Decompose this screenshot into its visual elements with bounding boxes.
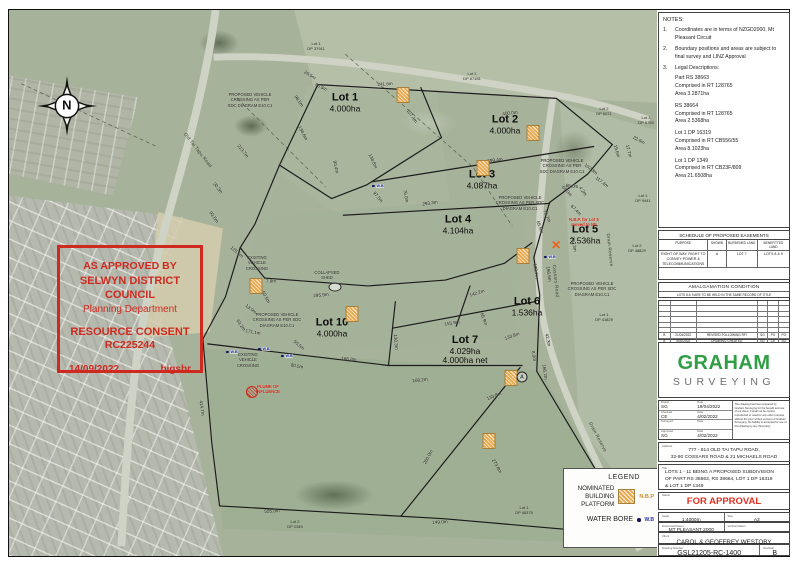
lot-name: Lot 2: [490, 115, 521, 127]
copyright-note: This drawing has been prepared by Graham…: [733, 401, 790, 439]
legal-description: Lot 1 DP 1349Comprised in RT CB23F/809Ar…: [675, 158, 785, 181]
plume-of-influence-icon: [246, 386, 258, 398]
measurement-label: 42.3m: [544, 333, 552, 347]
legend-wb-abbr: W.B: [645, 517, 654, 523]
note-text: Boundary positions and areas are subject…: [675, 46, 785, 62]
date-label: Date: [697, 420, 729, 423]
note-item: 1.Coordinates are in terms of NZGD2000, …: [663, 27, 785, 43]
water-bore-icon: [637, 518, 641, 522]
building-platform-icon: [505, 370, 518, 386]
stamp-date: 14/09/2022: [69, 364, 119, 375]
legend-nbp-label: NOMINATED BUILDING PLATFORM: [578, 485, 615, 508]
note-number: 3.: [663, 65, 671, 73]
neighbor-lot-label: Lot 2DP 48829: [628, 244, 646, 254]
measurement-label: 79.7m: [542, 209, 552, 223]
water-bore-icon: [544, 256, 547, 259]
vdatum-label: Vertical Datum: [728, 524, 787, 528]
measurement-label: 90.4m: [332, 160, 340, 174]
lot5-moved-nbp-cross: ×: [551, 238, 560, 254]
road-name-label: Old Tai Tapu Road: [183, 132, 213, 169]
lot-area: 4.104ha: [443, 226, 474, 235]
lot-name: Lot 6: [512, 297, 543, 309]
measurement-label: 76.0m: [402, 189, 409, 202]
datum-row: Horizontal DatumMT PLEASANT 2000 Vertica…: [658, 522, 790, 532]
legal-line: Area 3.2871ha: [675, 91, 785, 99]
legal-description: RS 38664Comprised in RT 128765Area 2.536…: [675, 103, 785, 126]
plan-sheet: N 241.6m400.0m26.5m56.5m98.5m138.6m90.4m…: [0, 0, 800, 566]
measurement-label: 22.6m: [632, 135, 646, 145]
measurement-label: 30.3m: [212, 181, 224, 194]
project-address: Address 777 - 814 OLD TAI TAPU ROAD, 32-…: [658, 442, 790, 462]
easement-title: SCHEDULE OF PROPOSED EASEMENTS: [659, 231, 789, 240]
measurement-label: 155.9m: [444, 319, 460, 326]
measurement-label: 65.0m: [565, 183, 578, 189]
note-text: Legal Descriptions:: [675, 65, 719, 73]
measurement-label: 130.7m: [532, 263, 539, 279]
approved-date: 4/02/2022: [697, 433, 729, 438]
neighbor-dp: DP 46375: [515, 510, 533, 515]
measurement-label: 125.5m: [230, 245, 245, 259]
map-annotation: COLLAPSED SHED: [314, 270, 339, 281]
neighbor-dp: DP 48829: [628, 248, 646, 253]
neighbor-lot-label: Lot 3DP 5765: [638, 116, 654, 126]
title-block-panel: NOTES: 1.Coordinates are in terms of NZG…: [658, 10, 790, 556]
lot-area: 4.000ha: [316, 329, 348, 338]
lot-label: Lot 52.536ha: [570, 225, 601, 246]
lot-label: Lot 61.536ha: [512, 297, 543, 318]
notes-box: NOTES: 1.Coordinates are in terms of NZG…: [658, 12, 790, 228]
lot-name: Lot 1: [330, 93, 361, 105]
legend-wb-label: WATER BORE: [587, 516, 633, 523]
approved-value: SG: [661, 433, 693, 438]
map-annotation: EXISTING VEHICLE CROSSING: [246, 255, 268, 271]
neighbor-dp: DP 41829: [595, 317, 613, 322]
building-platform-icon: [517, 248, 530, 264]
neighbor-dp: DP 1349: [287, 524, 303, 529]
easement-header: BURDENED LAND: [727, 240, 758, 251]
legal-line: RS 38664: [675, 103, 785, 111]
legal-descriptions: Part RS 38663Comprised in RT 128765Area …: [663, 75, 785, 181]
lot-area-net: 4.000ha net: [443, 356, 488, 365]
measurement-label: 273.8m: [491, 458, 503, 474]
amalgamation-text: LOTS 8 & 9 ARE TO BE HELD IN THE SAME RE…: [659, 291, 789, 297]
road-name-label: Drain Reserve: [606, 233, 614, 267]
dwg-number: GSL21205-RC-1400: [662, 550, 756, 557]
logo-graham: GRAHAM: [678, 353, 771, 373]
water-bore-icon: [372, 185, 375, 188]
measurement-label: 8.0m: [531, 351, 538, 362]
measurement-label: 168.2m: [412, 377, 428, 384]
legal-line: Comprised in RT CB23F/809: [675, 165, 785, 173]
measurement-label: 414.7m: [198, 400, 205, 416]
neighbor-dp: DP 37911: [307, 46, 324, 51]
map-area: N 241.6m400.0m26.5m56.5m98.5m138.6m90.4m…: [9, 10, 657, 556]
water-bore-label: W.B: [230, 350, 238, 354]
lot-label: Lot 104.000ha: [316, 318, 348, 339]
legal-line: Lot 1 DP 16319: [675, 130, 785, 138]
measurement-label: 166.2m: [541, 364, 548, 380]
lot-area: 1.536ha: [512, 308, 543, 317]
neighbor-lot-label: Lot 1DP 37911: [307, 42, 324, 52]
measurement-label: 138.8m: [367, 153, 378, 169]
easement-header: PURPOSE: [659, 240, 708, 251]
measurement-label: 63.2m: [235, 318, 246, 331]
easement-cell: LOT 7: [727, 251, 758, 268]
measurement-label: 213.7m: [236, 143, 249, 158]
measurement-label: 133.8m: [486, 391, 502, 401]
neighbor-dp: DP 6071: [596, 111, 612, 116]
neighbor-dp: DP 9441: [635, 198, 651, 203]
measurement-label: 56.5m: [314, 82, 328, 92]
legal-line: Comprised in RT 128765: [675, 111, 785, 119]
stamp-code: bigsbr: [160, 364, 191, 375]
neighbor-lot-label: Lot 2DP 6071: [596, 107, 612, 117]
stamp-line: Planning Department: [60, 303, 200, 316]
drawn-value: SG: [661, 404, 693, 409]
building-platform-icon: [250, 278, 263, 294]
lot-name: Lot 10: [316, 318, 348, 330]
revision-table: B21/04/2022REVISED FOLLOWING RFISGPOPOA4…: [658, 300, 790, 340]
water-bore-marker: W.B: [226, 350, 238, 354]
easement-cell: LOTS 8 & 9: [758, 251, 789, 268]
easement-cell: A: [708, 251, 726, 268]
easement-header: SHOWN: [708, 240, 726, 251]
measurement-label: 7.9m: [266, 279, 276, 284]
legend-title: LEGEND: [570, 474, 640, 481]
checked-value: CE: [661, 414, 693, 419]
note-number: 2.: [663, 46, 671, 62]
lot-name: Lot 4: [443, 215, 474, 227]
measurement-label: 19.6m: [613, 144, 621, 158]
address-line2: 32-90 COSSARS ROAD & 21 MICHAELS ROAD: [662, 455, 786, 462]
checked-date: 4/02/2022: [697, 414, 729, 419]
legal-line: Lot 1 DP 1349: [675, 158, 785, 166]
easement-schedule: SCHEDULE OF PROPOSED EASEMENTS PURPOSESH…: [658, 230, 790, 280]
legal-line: Area 8.1023ha: [675, 146, 785, 154]
neighbor-lot-label: Lot 1DP 9441: [635, 194, 651, 204]
measurement-label: 17.7m: [625, 144, 633, 158]
drawing-number-box: Drawing NumberGSL21205-RC-1400 RevisionB: [658, 544, 790, 556]
building-platform-icon: [397, 87, 410, 103]
legal-line: Comprised in RT 128765: [675, 83, 785, 91]
measurement-label: 117.4m: [595, 175, 610, 188]
notes-title: NOTES:: [663, 16, 785, 24]
stamp-line: AS APPROVED BY: [83, 260, 177, 272]
measurement-label: 295.9m: [313, 292, 329, 298]
water-bore-label: W.B: [262, 347, 270, 351]
client-box: Client CAROL & GEOFFREY WESTOBY: [658, 532, 790, 544]
lot-name: Lot 7: [443, 335, 488, 347]
surveyed-label: Surveyed: [661, 420, 693, 423]
legend-box: LEGEND NOMINATED BUILDING PLATFORM N.B.P…: [563, 468, 657, 548]
measurement-label: 166.8m: [341, 356, 357, 363]
collapsed-shed-icon: [329, 283, 342, 292]
drawing-title: Title LOTS 1 - 11 BEING A PROPOSED SUBDI…: [658, 464, 790, 490]
map-annotation: PROPOSED VEHICLE CROSSING AS PER SDC DIA…: [496, 195, 545, 211]
lot-label: Lot 14.000ha: [330, 93, 361, 114]
measurement-label: 241.6m: [377, 81, 393, 87]
nbp-swatch-icon: [618, 489, 635, 504]
water-bore-marker: W.B: [281, 354, 293, 358]
road-name-label: Drain Reserve: [588, 421, 608, 453]
title-line2: OF PART RS 38663, RS 38664, LOT 1 DP 163…: [662, 477, 786, 484]
measurement-label: 93.5m: [208, 210, 219, 223]
company-logo: GRAHAM SURVEYING: [658, 342, 790, 398]
water-bore-icon: [258, 348, 261, 351]
easement-header: BENEFITTED LAND: [758, 240, 789, 251]
measurement-label: 555.8m: [264, 508, 280, 514]
lot-label: Lot 24.000ha: [490, 115, 521, 136]
rev-value: B: [763, 550, 786, 557]
status-for-approval: FOR APPROVAL: [659, 497, 789, 508]
measurement-label: 50.5m: [292, 339, 305, 351]
easement-a-marker: A: [517, 372, 528, 383]
note-item: 2.Boundary positions and areas are subje…: [663, 46, 785, 62]
measurement-label: 260.0m: [422, 449, 434, 465]
water-bore-marker: W.B: [544, 255, 556, 259]
address-line1: 777 - 814 OLD TAI TAPU ROAD,: [662, 448, 786, 455]
title-line3: & LOT 1 DP 1349: [662, 484, 786, 491]
building-platform-icon: [527, 125, 540, 141]
measurement-label: 130.3m: [393, 334, 399, 350]
neighbor-lot-label: Lot 1DP 41829: [595, 313, 613, 323]
lot-label: Lot 44.104ha: [443, 215, 474, 236]
measurement-label: 133.8m: [504, 331, 520, 341]
measurement-label: 138.6m: [297, 125, 309, 141]
note-text: Coordinates are in terms of NZGD2000, Mt…: [675, 27, 785, 43]
measurement-label: 137.4m: [406, 108, 419, 123]
lot-area: 4.000ha: [330, 104, 361, 113]
measurement-label: 171.1m: [245, 328, 261, 336]
stamp-line: RC225244: [60, 339, 200, 353]
amalgamation-title: AMALGAMATION CONDITION: [659, 283, 789, 290]
drawn-date: 19/04/2022: [697, 404, 729, 409]
building-platform-icon: [477, 160, 490, 176]
measurement-label: 65.5m: [535, 220, 544, 234]
building-platform-icon: [483, 433, 496, 449]
map-annotation: PROPOSED VEHICLE CROSSING AS PER SDC DIA…: [568, 281, 617, 297]
map-annotation: PROPOSED VEHICLE CROSSING AS PER SDC DIA…: [228, 92, 273, 108]
neighbor-lot-label: Lot 1DP 46375: [515, 506, 533, 516]
lot-area: 2.536ha: [570, 236, 601, 245]
building-platform-icon: [346, 306, 359, 322]
title-line1: LOTS 1 - 11 BEING A PROPOSED SUBDIVISION: [662, 470, 786, 477]
amalgamation-box: AMALGAMATION CONDITION LOTS 8 & 9 ARE TO…: [658, 282, 790, 298]
map-annotation: EXISTING VEHICLE CROSSING: [237, 352, 259, 368]
measurement-label: 80.5m: [290, 362, 303, 369]
easement-table: PURPOSESHOWNBURDENED LANDBENEFITTED LAND…: [659, 240, 789, 268]
client-label: Client: [662, 534, 786, 538]
legal-line: Area 21.6508ha: [675, 173, 785, 181]
drawing-meta: DrawnSG Date19/04/2022 CheckedCE Date4/0…: [658, 400, 790, 440]
measurement-label: 293.3m: [422, 199, 438, 206]
water-bore-label: W.B: [285, 354, 293, 358]
status-box: Status FOR APPROVAL NOT TO BE USED FOR C…: [658, 492, 790, 510]
neighbor-lot-label: Lot 2DP 1349: [287, 520, 303, 530]
easement-cell: RIGHT OF WAY, RIGHT TO CONVEY POWER & TE…: [659, 251, 708, 268]
note-item: 3.Legal Descriptions:: [663, 65, 785, 73]
neighbor-lot-label: Lot 1DP 67181: [463, 72, 481, 82]
road-name-label: Cossars Road: [552, 264, 560, 297]
map-annotation: PLUME OF INFLUENCE: [256, 384, 280, 395]
legal-description: Part RS 38663Comprised in RT 128765Area …: [675, 75, 785, 98]
stamp-line: SELWYN DISTRICT COUNCIL: [60, 274, 200, 303]
logo-surveying: SURVEYING: [673, 377, 775, 388]
lot-area: 4.000ha: [490, 126, 521, 135]
lot-label: Lot 74.029ha4.000ha net: [443, 335, 488, 365]
neighbor-dp: DP 5765: [638, 120, 654, 125]
measurement-label: 142.2m: [469, 288, 485, 297]
map-annotation: N.B.P. for Lot 5 moved to NE: [569, 217, 599, 228]
scale-size-row: Scale1:4000m SizeA3: [658, 512, 790, 522]
legend-nbp-abbr: N.B.P: [639, 494, 654, 500]
water-bore-label: W.B: [376, 184, 384, 188]
lot-area: 4.087ha: [467, 181, 498, 190]
legal-description: Lot 1 DP 16319Comprised in RT CB556/55Ar…: [675, 130, 785, 153]
measurement-label: 26.5m: [303, 69, 316, 80]
note-number: 1.: [663, 27, 671, 43]
water-bore-marker: W.B: [258, 347, 270, 351]
map-annotation: PROPOSED VEHICLE CROSSING AS PER SDC DIA…: [540, 158, 585, 174]
water-bore-icon: [226, 351, 229, 354]
legal-line: Area 2.5368ha: [675, 118, 785, 126]
map-annotation: PROPOSED VEHICLE CROSSING AS PER SDC DIA…: [253, 312, 302, 328]
water-bore-label: W.B: [548, 255, 556, 259]
measurement-label: 102.3m: [583, 162, 598, 175]
legal-line: Part RS 38663: [675, 75, 785, 83]
measurement-label: 149.0m: [432, 519, 448, 525]
water-bore-marker: W.B: [372, 184, 384, 188]
measurement-label: 97.5m: [372, 190, 384, 203]
measurement-label: 65.9m: [479, 312, 488, 326]
approval-stamp: AS APPROVED BY SELWYN DISTRICT COUNCIL P…: [57, 245, 203, 373]
stamp-line: RESOURCE CONSENT: [60, 325, 200, 339]
water-bore-icon: [281, 355, 284, 358]
notes-list: 1.Coordinates are in terms of NZGD2000, …: [663, 27, 785, 72]
measurement-label: 98.5m: [293, 94, 304, 107]
neighbor-dp: DP 67181: [463, 76, 481, 81]
legal-line: Comprised in RT CB556/55: [675, 138, 785, 146]
measurement-label: 67.4m: [570, 204, 583, 217]
measurement-label: 4.2m: [578, 185, 588, 196]
